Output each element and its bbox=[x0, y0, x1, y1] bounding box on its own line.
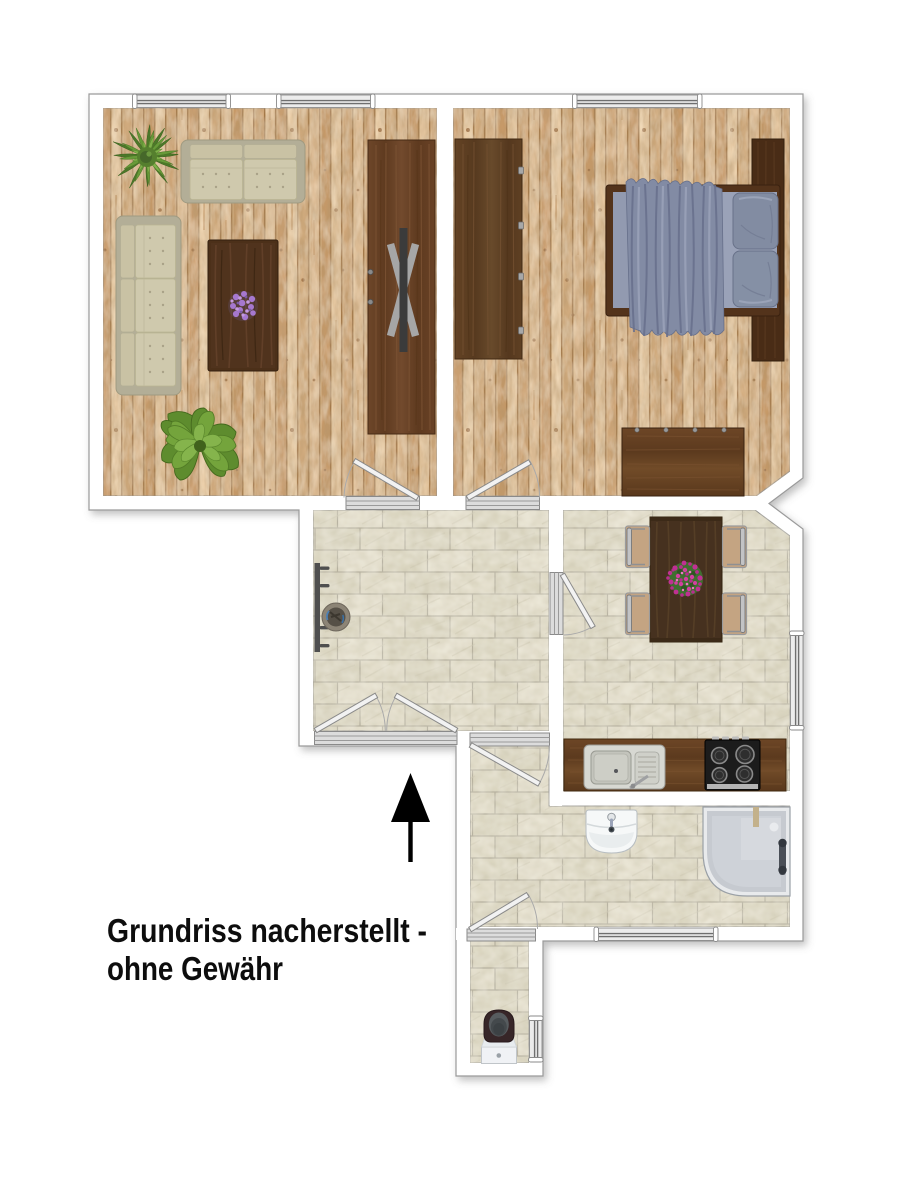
svg-text:ohne Gewähr: ohne Gewähr bbox=[107, 951, 283, 988]
svg-text:Grundriss nacherstellt -: Grundriss nacherstellt - bbox=[107, 913, 427, 950]
